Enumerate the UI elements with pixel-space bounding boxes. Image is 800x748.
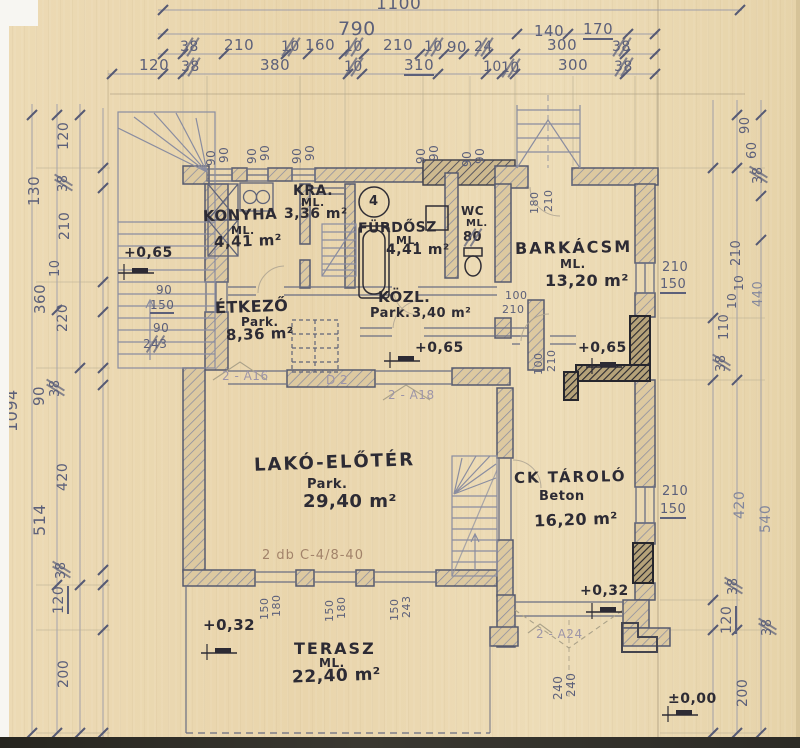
room-kozl-finish: Park. — [370, 307, 410, 320]
level-hall: +0,65 — [415, 341, 464, 355]
dim-r4-5: 10 — [483, 60, 502, 74]
dim-left-120a: 120 — [57, 122, 71, 150]
dim-790: 790 — [338, 20, 376, 39]
dim-r4-3: 10 — [344, 60, 363, 74]
dim-r4-8: 38 — [614, 60, 633, 74]
barkacs-window-height: 150 — [660, 278, 686, 294]
level-ck: +0,32 — [580, 584, 629, 598]
scan-corner-top-left — [0, 0, 38, 26]
terrace-open2-h: 180 — [336, 597, 347, 620]
entry-door-width: 180 — [529, 192, 540, 215]
dim-r3-6: 10 — [424, 40, 443, 54]
left-window-width: 90 — [156, 284, 172, 296]
dim-r4-4: 310 — [404, 58, 434, 76]
room-ck-area: 16,20 m² — [534, 511, 618, 530]
tag-a18: 2 - A18 — [388, 389, 435, 401]
win-size-90: 90 — [304, 145, 316, 161]
room-wc-name: WC — [461, 205, 484, 217]
dim-left-120b: 120 — [52, 586, 69, 614]
dim-right-38c: 38 — [727, 577, 740, 595]
win-size-90: 90 — [291, 148, 303, 164]
dining-furniture — [292, 320, 338, 372]
dim-r4-1: 38 — [181, 60, 200, 74]
dim-right-420: 420 — [733, 491, 747, 519]
dim-left-200: 200 — [57, 660, 71, 688]
dim-total-width: 1100 — [376, 0, 421, 13]
room-kozl-name: KÖZL. — [378, 290, 430, 305]
terrace-open3-h: 243 — [401, 596, 412, 619]
scan-edge-right — [796, 0, 800, 748]
floor-plan-sheet: 1100 790 140 170 38 210 10 160 10 210 10… — [0, 0, 800, 748]
room-ck-finish: Beton — [539, 490, 585, 503]
win-size-90: 90 — [428, 145, 440, 161]
room-etkezo-area: 8,36 m² — [226, 326, 294, 343]
mid-door-width: 100 — [533, 353, 544, 376]
tag-d2: D 2 — [326, 374, 348, 386]
dim-left-420: 420 — [56, 463, 70, 491]
terrace-open2-w: 150 — [324, 600, 335, 623]
dim-r3-10: 38 — [612, 40, 631, 54]
dim-right-120: 120 — [720, 606, 737, 634]
room-barkacs-finish: ML. — [560, 258, 586, 270]
dim-right-38d: 38 — [761, 618, 774, 636]
win-size-90: 90 — [461, 151, 473, 167]
dim-left-90: 90 — [32, 386, 47, 406]
left-window-height: 150 — [150, 299, 174, 314]
dim-left-38a: 38 — [57, 174, 70, 192]
ck-door-width: 240 — [552, 676, 564, 700]
dim-r4-2: 380 — [260, 58, 290, 73]
win-size-90: 90 — [474, 148, 486, 164]
barkacs-door-height: 210 — [502, 304, 525, 315]
win-size-90: 90 — [246, 148, 258, 164]
dim-left-514: 514 — [32, 504, 48, 536]
win-size-90: 90 — [218, 147, 230, 163]
dim-r3-9: 300 — [547, 38, 577, 53]
win-size-90: 90 — [415, 148, 427, 164]
dim-right-110: 110 — [718, 314, 731, 340]
room-terasz-name: TERASZ — [294, 641, 376, 657]
tag-a16: 2 - A16 — [222, 370, 269, 382]
room-etkezo-name: ÉTKEZŐ — [215, 298, 289, 317]
level-terrace: +0,32 — [203, 618, 255, 633]
left-door-height: 243 — [143, 338, 167, 350]
entry-door-height: 210 — [543, 190, 554, 213]
dim-r3-4: 10 — [344, 40, 363, 54]
dim-right-200: 200 — [736, 679, 750, 707]
ck-window-width: 210 — [662, 485, 688, 498]
room-wc-area: 80 — [463, 231, 482, 244]
level-stair-landing: +0,65 — [124, 246, 173, 260]
room-ck-name: CK TÁROLÓ — [514, 469, 627, 486]
ck-door-height: 240 — [565, 673, 577, 697]
level-barkacs: +0,65 — [578, 341, 627, 355]
dim-r3-2: 10 — [281, 40, 300, 54]
floorplan-drawing — [0, 0, 800, 748]
dim-right-440: 440 — [752, 281, 765, 307]
ck-window-height: 150 — [660, 503, 686, 519]
dim-left-130: 130 — [27, 176, 42, 206]
room-barkacs-name: BARKÁCSM — [515, 239, 632, 257]
room-konyha-name: KONYHA — [203, 207, 278, 225]
mid-door-height: 210 — [546, 350, 557, 373]
room-terasz-area: 22,40 m² — [292, 666, 381, 686]
tag-a24: 2 - A24 — [536, 628, 583, 640]
dim-r3-0: 38 — [180, 40, 199, 54]
dim-left-10: 10 — [49, 259, 62, 277]
room-kamra-area: 3,36 m² — [284, 207, 348, 221]
room-wc-finish: ML. — [466, 219, 488, 229]
room-furdo-area: 4,41 m² — [386, 243, 450, 257]
dim-right-90: 90 — [739, 116, 752, 134]
interior-stair-lako — [452, 456, 497, 576]
win-size-90: 90 — [259, 145, 271, 161]
dim-left-210: 210 — [58, 212, 72, 240]
dim-r4-7: 300 — [558, 58, 588, 73]
room-kozl-area: 3,40 m² — [412, 307, 471, 320]
dim-left-220: 220 — [56, 304, 70, 332]
dim-left-38c: 38 — [55, 561, 68, 579]
left-door-width: 90 — [153, 322, 169, 334]
dim-right-540: 540 — [759, 505, 773, 533]
terrace-open3-w: 150 — [389, 599, 400, 622]
boiler-mark: 4 — [369, 195, 379, 208]
dim-r3-7: 90 — [447, 40, 467, 55]
dim-r3-8: 24 — [474, 40, 493, 54]
barkacs-window-width: 210 — [662, 261, 688, 274]
dim-right-38a: 38 — [752, 166, 765, 184]
dim-r3-3: 160 — [305, 38, 335, 53]
dim-left-360: 360 — [33, 284, 48, 314]
scan-edge-left — [0, 0, 9, 748]
level-ground: ±0,00 — [668, 692, 717, 706]
dim-170: 170 — [583, 22, 613, 40]
dim-right-10a: 10 — [733, 275, 745, 291]
dim-right-38b: 38 — [715, 354, 728, 372]
room-lako-finish: Park. — [307, 478, 347, 491]
dim-right-210: 210 — [730, 240, 743, 266]
beam-marks — [213, 362, 623, 700]
dim-r4-0: 120 — [139, 58, 169, 73]
room-lako-area: 29,40 m² — [303, 493, 397, 511]
room-konyha-area: 4,41 m² — [214, 233, 282, 250]
room-barkacs-area: 13,20 m² — [545, 273, 629, 289]
dim-left-38b: 38 — [49, 379, 62, 397]
beam-note: 2 db C-4/8-40 — [262, 549, 364, 562]
win-size-90: 90 — [205, 150, 217, 166]
entry-steps — [517, 95, 580, 168]
terrace-open1-h: 180 — [271, 595, 282, 618]
terrace-open1-w: 150 — [259, 598, 270, 621]
scan-edge-bottom — [0, 737, 800, 748]
barkacs-door-width: 100 — [505, 290, 528, 301]
dim-r4-6: 10 — [501, 61, 520, 75]
dim-right-10b: 10 — [726, 293, 738, 309]
dim-r3-5: 210 — [383, 38, 413, 53]
dim-r3-1: 210 — [224, 38, 254, 53]
dim-right-60: 60 — [746, 141, 759, 159]
